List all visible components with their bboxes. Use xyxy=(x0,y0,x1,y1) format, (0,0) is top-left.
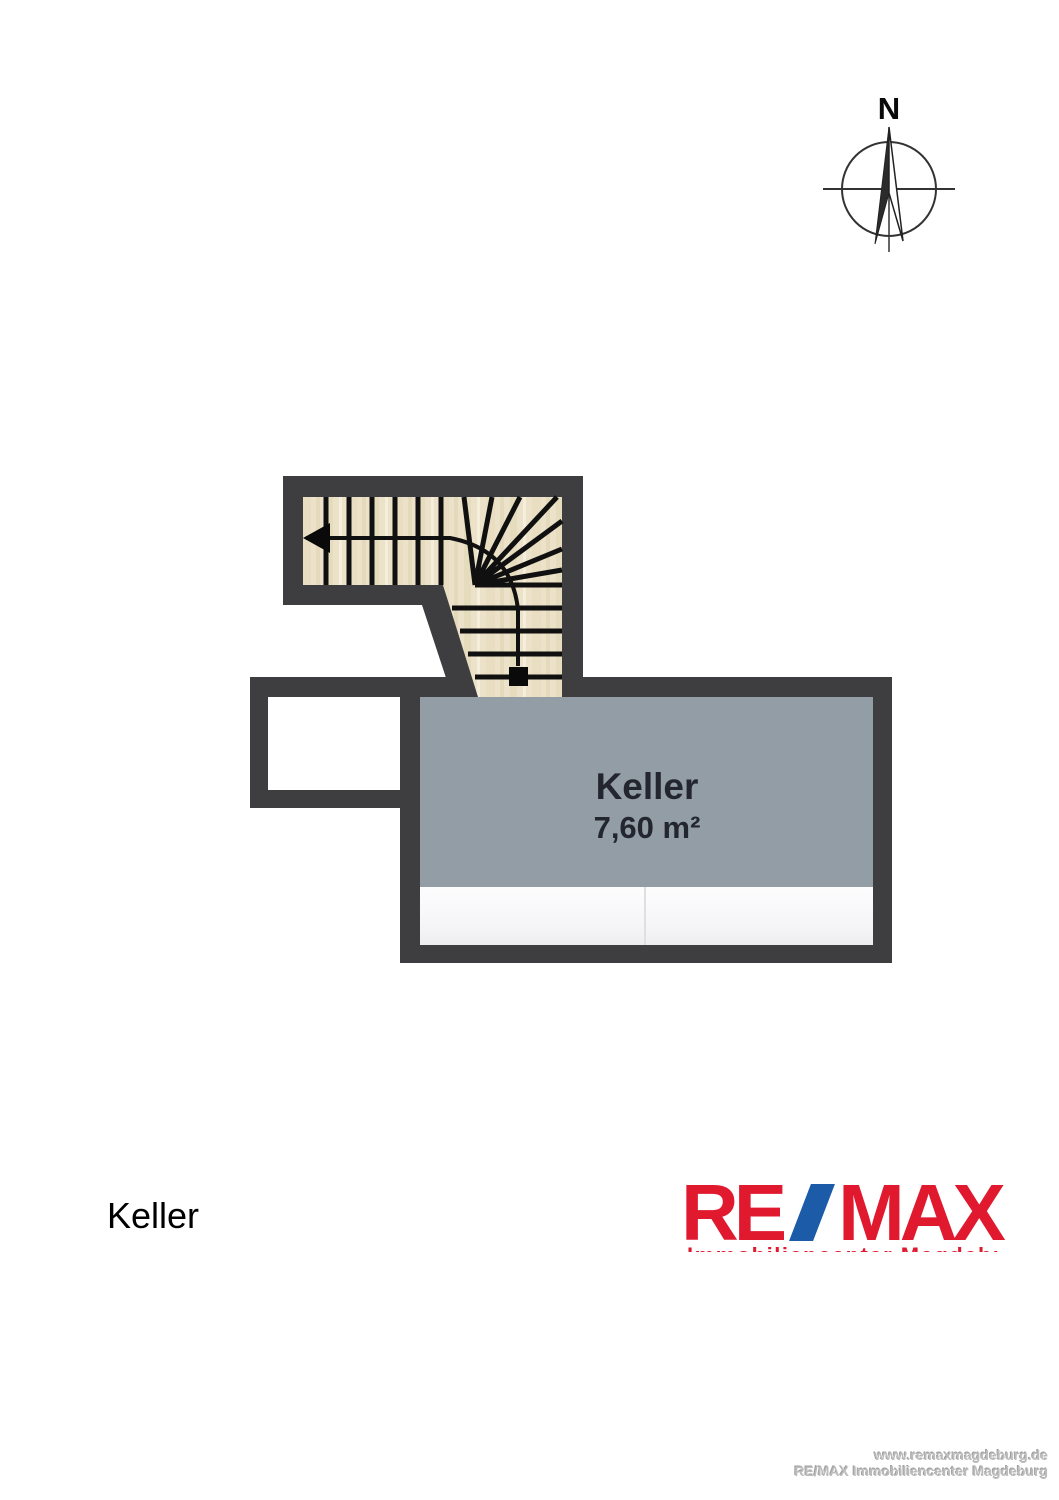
remax-logo-subline-text: Immobiliencenter Magdeburg xyxy=(687,1243,999,1252)
compass-rose: N xyxy=(823,91,955,252)
stair-wall-top xyxy=(283,476,583,497)
stair-start-marker xyxy=(509,667,528,686)
remax-logo: RE MAX xyxy=(681,1173,1001,1243)
remax-logo-slash-icon xyxy=(789,1184,835,1241)
floor-plan: N Keller 7,60 m² xyxy=(0,0,1059,1500)
footer-website: www.remaxmagdeburg.de xyxy=(794,1447,1048,1463)
alcove-walls xyxy=(250,677,420,808)
room-area-label: 7,60 m² xyxy=(594,810,701,845)
plan-caption-title: Keller xyxy=(107,1196,199,1236)
cabinet-strip xyxy=(420,887,873,945)
footer-office: RE/MAX Immobiliencenter Magdeburg xyxy=(794,1463,1048,1479)
compass-north-label: N xyxy=(878,91,900,126)
stair-wall-right xyxy=(562,476,583,697)
remax-logo-max: MAX xyxy=(838,1173,1001,1253)
room-name-label: Keller xyxy=(596,766,699,807)
remax-logo-subline-clipped: Immobiliencenter Magdeburg xyxy=(687,1243,999,1252)
footer-watermark: www.remaxmagdeburg.de RE/MAX Immobilienc… xyxy=(794,1447,1048,1479)
remax-logo-re: RE xyxy=(681,1173,782,1253)
